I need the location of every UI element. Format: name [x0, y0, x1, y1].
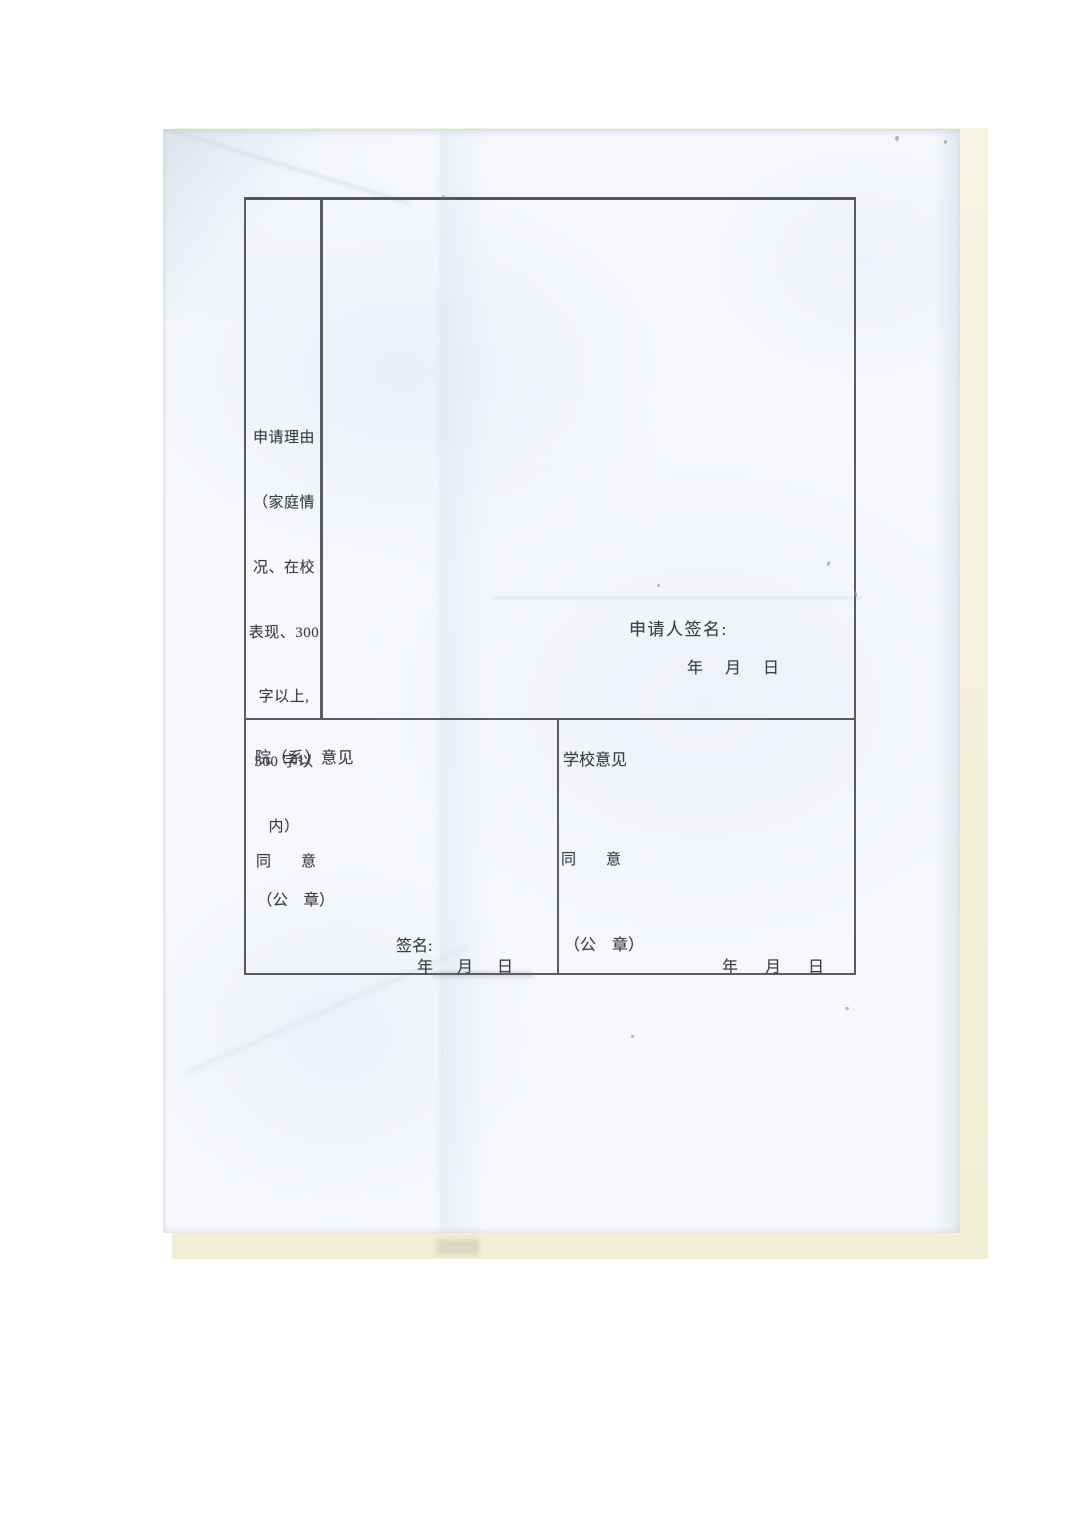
reason-cell-label: 申请理由 （家庭情 况、在校 表现、300 字以上, 500 字以 内）	[247, 385, 321, 860]
scanned-form-page: { "colors": { "background": "#ffffff", "…	[0, 0, 1080, 1527]
applicant-date-line: 年 月 日	[687, 654, 782, 678]
department-opinion-title: 院（系）意见	[255, 744, 354, 768]
applicant-signature-label: 申请人签名:	[629, 615, 728, 640]
dust-speck	[631, 1035, 634, 1038]
paper-right-edge-shadow	[934, 129, 960, 1233]
paper-top-edge-shadow	[163, 129, 960, 138]
scan-smudge	[437, 1239, 479, 1255]
table-divider-rows	[246, 718, 854, 720]
reason-label-line: 表现、300	[247, 623, 321, 645]
school-seal-placeholder: （公 章）	[564, 931, 644, 955]
form-table-border	[244, 197, 856, 975]
dust-speck	[895, 136, 899, 141]
department-seal-placeholder: （公 章）	[257, 888, 335, 910]
crease-line-top-left	[163, 129, 409, 204]
school-opinion-title: 学校意见	[563, 746, 627, 770]
dust-speck	[845, 1007, 849, 1010]
paper-bottom-edge-shadow	[163, 1226, 960, 1233]
table-divider-opinion-cells	[557, 720, 559, 973]
school-agree-text: 同 意	[561, 848, 621, 869]
reason-label-line: 申请理由	[247, 428, 321, 450]
department-agree-text: 同 意	[256, 850, 316, 871]
reason-label-line: 况、在校	[247, 558, 321, 580]
reason-label-line: （家庭情	[247, 493, 321, 515]
dust-speck	[944, 140, 947, 144]
reason-label-line: 字以上,	[247, 687, 321, 709]
dust-speck	[442, 195, 445, 198]
reason-label-line: 内）	[247, 817, 321, 839]
dust-speck	[657, 584, 660, 587]
school-date-line: 年 月 日	[722, 953, 830, 977]
scan-smudge	[432, 972, 532, 977]
